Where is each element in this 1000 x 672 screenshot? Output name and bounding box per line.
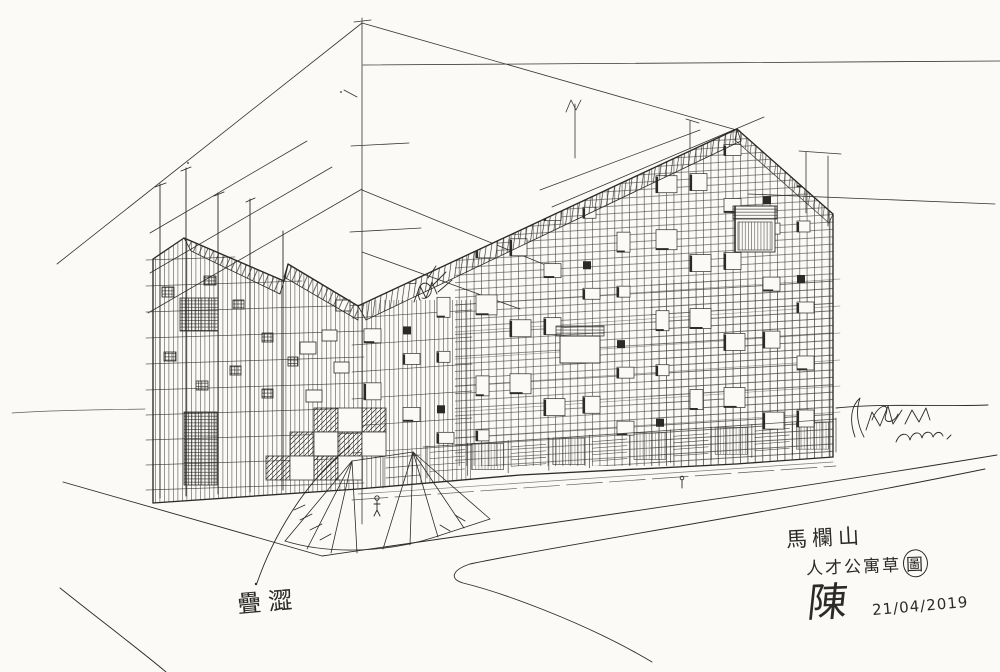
circled-character: 圖 [902, 549, 928, 578]
material-annotation: 疊澀 [236, 579, 301, 619]
sketch-title: 馬欄山 [785, 520, 864, 554]
awning-window [556, 326, 604, 363]
paper: { "artwork": { "project_title": "馬欄山", "… [0, 0, 1000, 672]
front-facade [352, 126, 840, 492]
loggia-window [733, 206, 777, 252]
shrubs-sketch [852, 398, 951, 442]
artist-signature: 陳 [805, 569, 851, 629]
